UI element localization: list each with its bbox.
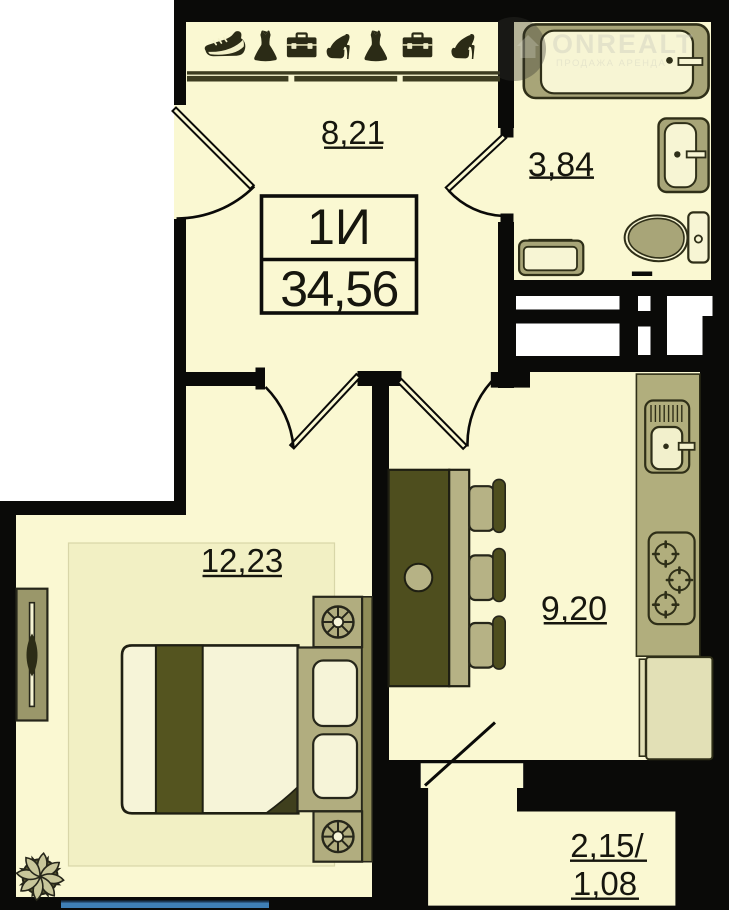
svg-text:34,56: 34,56: [280, 261, 398, 317]
svg-text:1,08: 1,08: [573, 865, 637, 902]
svg-text:8,21: 8,21: [321, 114, 385, 151]
svg-text:12,23: 12,23: [201, 542, 284, 579]
svg-text:1И: 1И: [307, 199, 371, 255]
svg-text:ONREALT: ONREALT: [552, 29, 695, 59]
svg-text:2,15/: 2,15/: [570, 827, 644, 864]
svg-text:ПРОДАЖА АРЕНДА: ПРОДАЖА АРЕНДА: [556, 58, 666, 69]
